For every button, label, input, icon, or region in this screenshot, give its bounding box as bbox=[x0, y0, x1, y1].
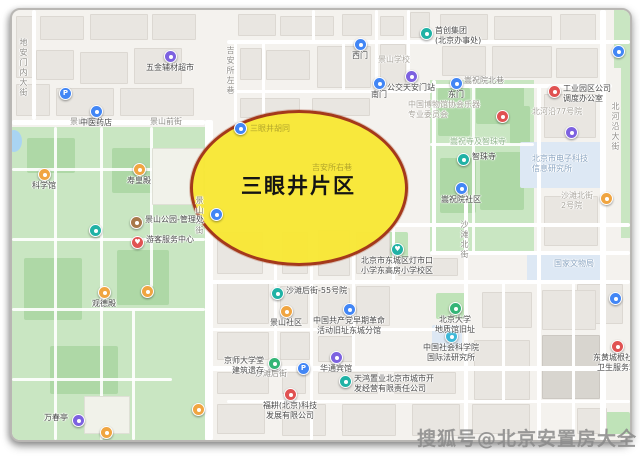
poi-marker[interactable]: P bbox=[297, 362, 310, 375]
poi-dot-icon bbox=[605, 197, 609, 201]
building bbox=[482, 292, 532, 328]
building bbox=[90, 14, 148, 40]
poi-marker[interactable] bbox=[609, 292, 622, 305]
poi-label: 游客服务中心 bbox=[146, 235, 194, 245]
highlight-area-name: 三眼井片区 bbox=[241, 170, 356, 200]
poi-marker[interactable] bbox=[100, 426, 113, 439]
map-label: 沙滩北街2号院 bbox=[561, 191, 593, 211]
building bbox=[342, 404, 396, 436]
poi-dot-icon bbox=[616, 345, 620, 349]
street bbox=[342, 40, 345, 92]
poi-label: 沙滩后街-55号院 bbox=[286, 286, 347, 296]
poi-marker[interactable] bbox=[496, 110, 509, 123]
poi-marker[interactable] bbox=[600, 192, 613, 205]
poi-label: 科学馆 bbox=[32, 181, 56, 191]
poi-marker[interactable] bbox=[98, 286, 111, 299]
poi-marker[interactable]: ♥ bbox=[391, 243, 404, 256]
poi-label: 寿皇殿 bbox=[127, 176, 151, 186]
map-label: 沙滩北街 bbox=[459, 220, 469, 260]
poi-glyph-parking: P bbox=[301, 365, 306, 372]
map-label-under-highlight: 吉安所右巷 bbox=[312, 162, 352, 173]
poi-dot-icon bbox=[410, 75, 414, 79]
poi-marker[interactable] bbox=[455, 182, 468, 195]
building bbox=[217, 282, 269, 324]
map-label: 北河沿77号院 bbox=[532, 107, 582, 117]
building bbox=[442, 46, 486, 76]
poi-label: 天鸿置业北京市城市开发经营有限责任公司 bbox=[354, 374, 434, 393]
poi-label: 中国社会科学院国际法研究所 bbox=[423, 343, 479, 362]
poi-label: 西门 bbox=[352, 51, 368, 61]
map-label: 吉安所左巷 bbox=[225, 46, 235, 96]
poi-dot-icon bbox=[103, 291, 107, 295]
poi-marker[interactable] bbox=[89, 224, 102, 237]
poi-label: 中医药店 bbox=[80, 118, 112, 128]
poi-dot-icon bbox=[273, 362, 277, 366]
street bbox=[375, 10, 378, 86]
poi-label: 北京市东城区灯市口小学东高房小学校区 bbox=[361, 256, 433, 275]
poi-dot-icon bbox=[285, 310, 289, 314]
poi-dot-icon bbox=[289, 393, 293, 397]
street bbox=[600, 10, 606, 440]
street bbox=[572, 280, 575, 440]
street bbox=[205, 280, 630, 284]
building bbox=[40, 16, 84, 40]
building bbox=[560, 14, 596, 42]
map-label-under-highlight: 三眼井胡同 bbox=[250, 123, 290, 134]
poi-dot-icon bbox=[359, 43, 363, 47]
poi-label: 南门 bbox=[371, 90, 387, 100]
poi-dot-icon bbox=[614, 297, 618, 301]
poi-dot-icon bbox=[94, 229, 98, 233]
poi-dot-icon bbox=[276, 292, 280, 296]
street bbox=[32, 10, 36, 120]
street bbox=[227, 40, 630, 44]
street bbox=[502, 280, 505, 402]
poi-label: 京师大学堂建筑遗存 bbox=[224, 356, 264, 375]
park-path bbox=[100, 127, 103, 440]
map-label: 地安门内大街 bbox=[18, 38, 28, 98]
poi-label: 公交天安门站 bbox=[387, 83, 435, 93]
poi-label: 观德殿 bbox=[92, 299, 116, 309]
building bbox=[266, 50, 310, 80]
poi-marker[interactable] bbox=[450, 77, 463, 90]
poi-label: 东门 bbox=[448, 90, 464, 100]
poi-dot-icon bbox=[95, 110, 99, 114]
poi-dot-icon bbox=[450, 335, 454, 339]
poi-marker[interactable] bbox=[38, 168, 51, 181]
map-card: 地安门内大街景山后街景山前街景山东街吉安所左巷嵩祝院北巷沙滩北街沙滩后街北河沿大… bbox=[10, 8, 632, 442]
poi-dot-icon bbox=[378, 82, 382, 86]
poi-dot-icon bbox=[43, 173, 47, 177]
map-label: 中国博物馆协会乐器专业委员会 bbox=[408, 100, 480, 120]
poi-dot-icon bbox=[553, 90, 557, 94]
building bbox=[494, 16, 552, 40]
building bbox=[492, 46, 552, 78]
poi-marker[interactable] bbox=[405, 70, 418, 83]
poi-marker[interactable] bbox=[280, 305, 293, 318]
poi-label: 福耕(北京)科技发展有限公司 bbox=[263, 401, 317, 420]
poi-label: 中国共产党早期革命活动旧址东城分馆 bbox=[313, 316, 385, 335]
poi-dot-icon bbox=[617, 50, 621, 54]
poi-marker[interactable] bbox=[339, 375, 352, 388]
building bbox=[238, 14, 276, 36]
building bbox=[80, 52, 128, 84]
map-label: 景山前街 bbox=[150, 117, 182, 127]
poi-marker[interactable] bbox=[343, 303, 356, 316]
poi-marker[interactable] bbox=[141, 285, 154, 298]
poi-dot-icon bbox=[77, 419, 81, 423]
map-label: 北京市电子科技信息研究所 bbox=[532, 154, 588, 174]
map-label: 嵩祝寺及智珠寺 bbox=[450, 137, 506, 147]
poi-marker[interactable] bbox=[268, 357, 281, 370]
watermark-text: 搜狐号@北京安置房大全 bbox=[417, 424, 637, 451]
poi-dot-icon bbox=[344, 380, 348, 384]
poi-dot-icon bbox=[169, 55, 173, 59]
poi-marker[interactable] bbox=[420, 27, 433, 40]
building bbox=[36, 50, 74, 80]
poi-dot-icon bbox=[197, 408, 201, 412]
poi-dot-icon bbox=[135, 221, 139, 225]
poi-marker[interactable] bbox=[133, 163, 146, 176]
poi-glyph-heart: ♥ bbox=[134, 239, 140, 246]
building bbox=[380, 16, 404, 36]
poi-dot-icon bbox=[335, 356, 339, 360]
poi-marker[interactable] bbox=[449, 302, 462, 315]
street bbox=[312, 10, 315, 42]
map-label: 景山学校 bbox=[378, 55, 410, 65]
poi-marker[interactable] bbox=[373, 77, 386, 90]
street bbox=[537, 84, 541, 440]
highlight-ellipse: 三眼井片区 bbox=[190, 110, 408, 266]
poi-dot-icon bbox=[462, 158, 466, 162]
poi-marker[interactable] bbox=[565, 126, 578, 139]
poi-label: 智珠寺 bbox=[472, 152, 496, 162]
poi-dot-icon bbox=[146, 290, 150, 294]
poi-marker[interactable] bbox=[611, 340, 624, 353]
poi-label: 首创集团(北京办事处) bbox=[435, 26, 481, 45]
poi-marker[interactable] bbox=[548, 85, 561, 98]
building bbox=[342, 14, 372, 36]
poi-glyph-heart: ♥ bbox=[394, 246, 400, 253]
building bbox=[240, 48, 262, 80]
map-label: 北河沿大街 bbox=[610, 102, 620, 152]
building bbox=[217, 404, 265, 434]
building bbox=[556, 48, 598, 78]
poi-marker[interactable] bbox=[130, 216, 143, 229]
poi-label: 景山社区 bbox=[270, 318, 302, 328]
map-label: 国家文物局 bbox=[554, 259, 594, 269]
poi-label: 景山公园-管理处 bbox=[145, 215, 204, 225]
park-path bbox=[12, 378, 172, 381]
poi-dot-icon bbox=[501, 115, 505, 119]
poi-marker[interactable] bbox=[234, 122, 247, 135]
building bbox=[280, 332, 310, 360]
map-canvas[interactable]: 地安门内大街景山后街景山前街景山东街吉安所左巷嵩祝院北巷沙滩北街沙滩后街北河沿大… bbox=[12, 10, 630, 440]
poi-marker[interactable] bbox=[354, 38, 367, 51]
poi-dot-icon bbox=[425, 32, 429, 36]
map-label: 嵩祝院北巷 bbox=[464, 76, 504, 86]
poi-dot-icon bbox=[460, 187, 464, 191]
poi-marker[interactable]: P bbox=[59, 87, 72, 100]
poi-marker[interactable]: ♥ bbox=[131, 236, 144, 249]
poi-marker[interactable] bbox=[72, 414, 85, 427]
poi-dot-icon bbox=[454, 307, 458, 311]
poi-marker[interactable] bbox=[457, 153, 470, 166]
building bbox=[120, 88, 194, 116]
right-edge-green-strip bbox=[621, 68, 630, 238]
poi-glyph-parking: P bbox=[63, 90, 68, 97]
building bbox=[542, 290, 596, 330]
right-edge-green-strip bbox=[614, 10, 630, 68]
poi-label: 北京大学地质馆旧址 bbox=[435, 315, 475, 334]
poi-dot-icon bbox=[239, 127, 243, 131]
poi-marker[interactable] bbox=[284, 388, 297, 401]
building bbox=[280, 16, 334, 36]
poi-dot-icon bbox=[215, 213, 219, 217]
poi-label: 华通宾馆 bbox=[320, 364, 352, 374]
poi-label: 万春亭 bbox=[44, 413, 68, 423]
poi-label: 五金辅材超市 bbox=[146, 63, 194, 73]
poi-marker[interactable] bbox=[612, 45, 625, 58]
poi-dot-icon bbox=[105, 431, 109, 435]
park-path bbox=[132, 310, 135, 440]
poi-marker[interactable] bbox=[164, 50, 177, 63]
poi-label: 嵩祝院社区 bbox=[441, 195, 481, 205]
poi-marker[interactable] bbox=[210, 208, 223, 221]
building bbox=[152, 14, 196, 40]
park-path bbox=[54, 127, 57, 440]
poi-dot-icon bbox=[570, 131, 574, 135]
poi-marker[interactable] bbox=[271, 287, 284, 300]
poi-marker[interactable] bbox=[90, 105, 103, 118]
poi-label: 东黄城根社区卫生服务站 bbox=[593, 353, 632, 372]
poi-label: 工业园区公司调度办公室 bbox=[563, 84, 611, 103]
poi-marker[interactable] bbox=[330, 351, 343, 364]
park-grove bbox=[50, 346, 118, 394]
poi-dot-icon bbox=[138, 168, 142, 172]
temple-building bbox=[510, 106, 530, 144]
poi-marker[interactable] bbox=[192, 403, 205, 416]
poi-dot-icon bbox=[455, 82, 459, 86]
poi-dot-icon bbox=[348, 308, 352, 312]
